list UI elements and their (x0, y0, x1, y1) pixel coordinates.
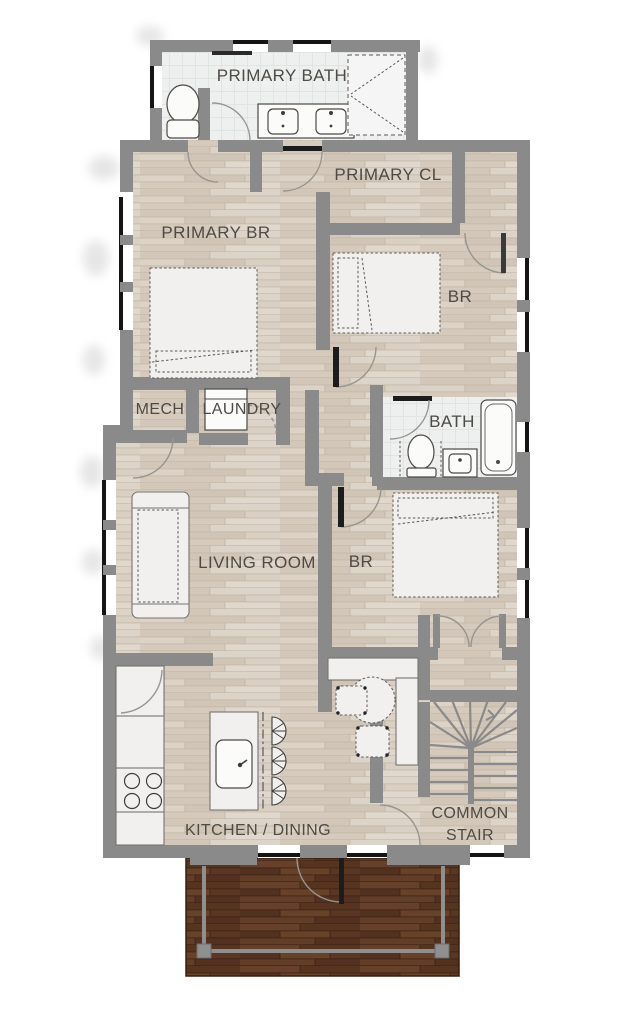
window-glazing-bathwing-left (150, 66, 154, 108)
room-label-br-upper: BR (448, 287, 472, 306)
window-glazing-bathwing-top-1 (233, 40, 268, 44)
bar-stools (272, 717, 286, 805)
deck-floor (186, 858, 459, 976)
shower (348, 55, 405, 135)
room-label-laundry: LAUNDRY (203, 401, 282, 418)
door-leaf-lower-br (338, 487, 344, 527)
window-glazing-br-upper-right-2 (525, 312, 529, 352)
room-label-living-room: LIVING ROOM (198, 553, 316, 572)
window-glazing-bottom-3 (470, 853, 504, 857)
room-label-br-lower: BR (349, 552, 373, 571)
door-leaf-hall-primary-br (333, 347, 339, 387)
window-glazing-br-upper-right-1 (525, 258, 529, 300)
bench-vertical (396, 678, 418, 765)
towel-bar (212, 51, 252, 55)
window-glazing-primary-br-left (119, 197, 123, 330)
bed-upper-br (333, 253, 440, 333)
window-glazing-bath-right (525, 422, 529, 452)
sink-bath (443, 449, 477, 477)
window-glazing-br-lower-right-1 (525, 528, 529, 568)
window-glazing-br-lower-right-2 (525, 580, 529, 618)
kitchen-island (210, 712, 286, 810)
island-sink (216, 740, 252, 788)
bath-pocket-door (393, 396, 432, 401)
room-label-common-stair-2: STAIR (446, 827, 494, 844)
door-leaf-primary-br-2 (283, 146, 322, 151)
deck-post-right (435, 944, 449, 958)
room-label-bath: BATH (429, 412, 475, 431)
sofa (132, 492, 189, 618)
toilet-primary (167, 85, 199, 138)
bathtub (481, 400, 516, 475)
door-leaf-deck (339, 858, 344, 904)
deck-post-left (197, 944, 211, 958)
room-label-common-stair-1: COMMON (431, 805, 508, 822)
window-glazing-bottom-1 (258, 853, 300, 857)
toilet-bath (407, 435, 436, 477)
floor-plan: PRIMARY BATH PRIMARY CL PRIMARY BR BR ME… (0, 0, 631, 1012)
door-threshold-1 (188, 140, 218, 152)
window-glazing-bathwing-top-2 (293, 40, 331, 44)
window-glazing-living-left (102, 480, 106, 615)
room-label-mech: MECH (136, 401, 185, 418)
stove (116, 768, 164, 812)
window-glazing-bottom-2 (347, 853, 387, 857)
bed-primary (150, 268, 257, 378)
double-vanity (258, 104, 354, 138)
bed-lower-br (393, 493, 498, 597)
floor-plan-drawing: PRIMARY BATH PRIMARY CL PRIMARY BR BR ME… (0, 0, 631, 1012)
kitchen-counter-run (116, 666, 164, 845)
room-label-primary-bath: PRIMARY BATH (217, 66, 347, 85)
room-label-kitchen-dining: KITCHEN / DINING (185, 822, 331, 839)
room-label-primary-cl: PRIMARY CL (334, 165, 441, 184)
deck (186, 858, 459, 976)
room-label-primary-br: PRIMARY BR (161, 223, 270, 242)
door-leaf-upper-br-entry (501, 233, 506, 273)
